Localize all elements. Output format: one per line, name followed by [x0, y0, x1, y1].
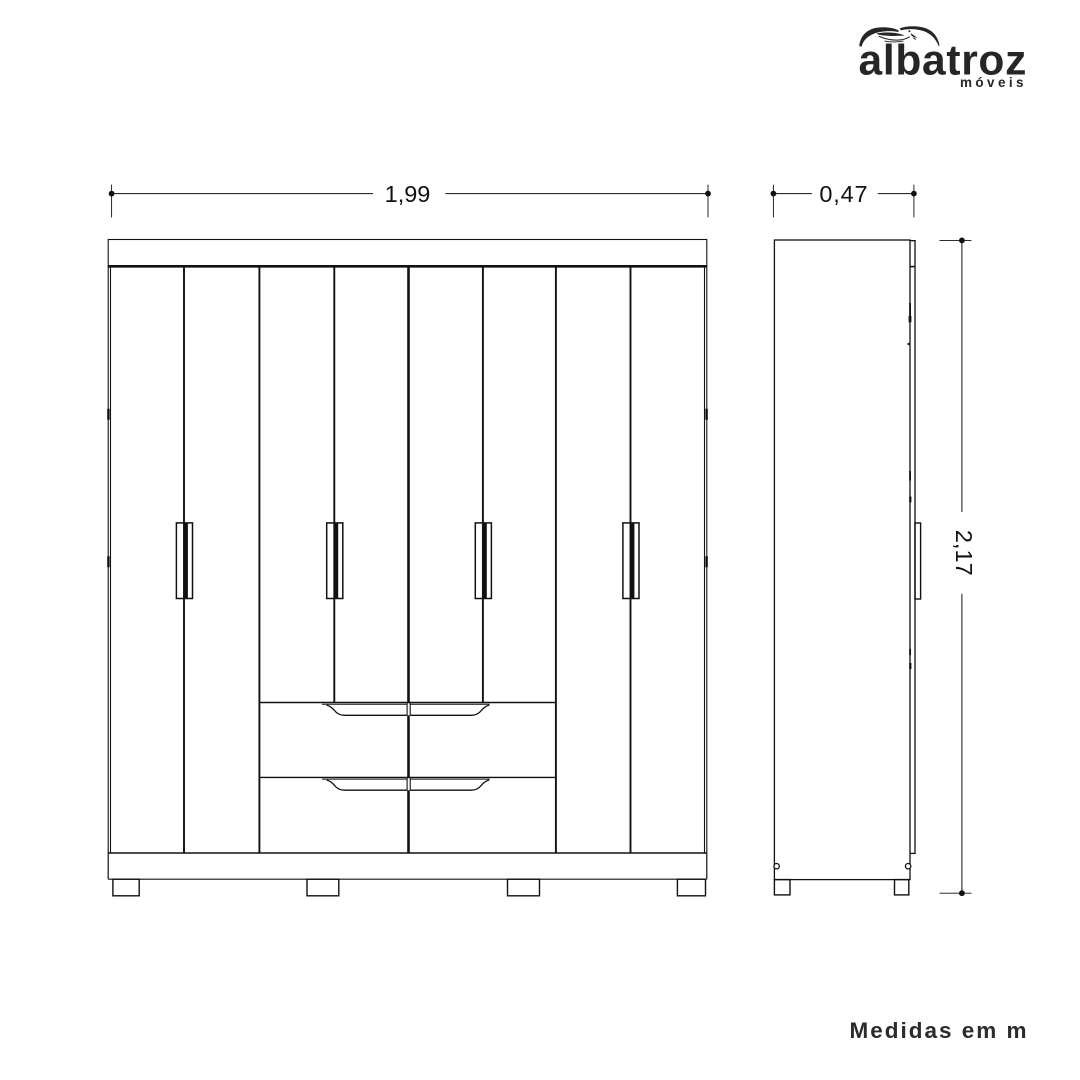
svg-text:2,17: 2,17	[951, 530, 977, 576]
svg-text:Medidas em m: Medidas em m	[850, 1018, 1029, 1043]
svg-text:móveis: móveis	[960, 75, 1027, 90]
svg-text:0,47: 0,47	[819, 181, 868, 207]
svg-text:1,99: 1,99	[385, 181, 431, 207]
